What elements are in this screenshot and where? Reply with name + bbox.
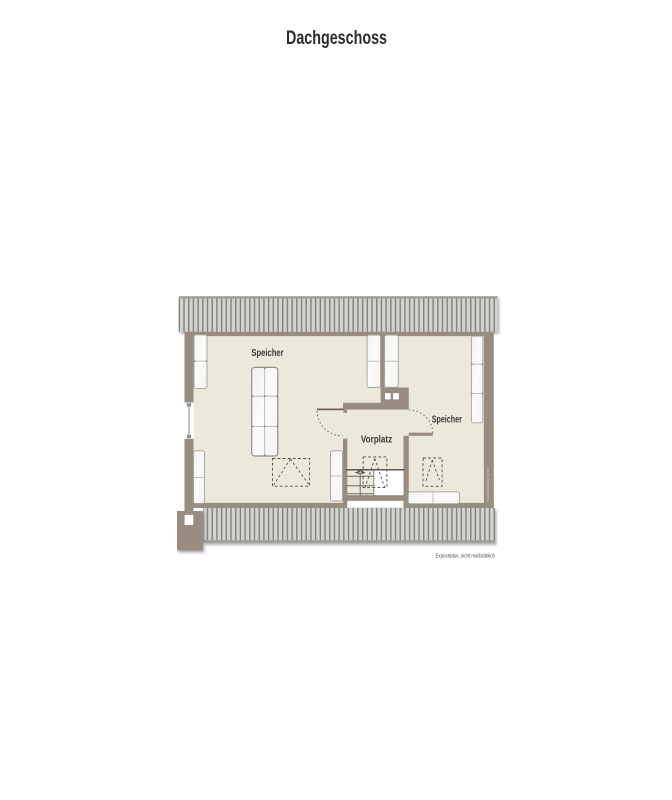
svg-text:Speicher: Speicher (251, 348, 283, 359)
svg-text:Exposéplan, nicht maßstäblich: Exposéplan, nicht maßstäblich (436, 554, 496, 560)
svg-text:Speicher: Speicher (432, 415, 462, 426)
svg-text:Dachgeschoss: Dachgeschoss (286, 27, 387, 49)
svg-text:Kundenzeichnung Service: Kundenzeichnung Service (486, 467, 490, 501)
svg-text:Vorplatz: Vorplatz (361, 434, 392, 445)
